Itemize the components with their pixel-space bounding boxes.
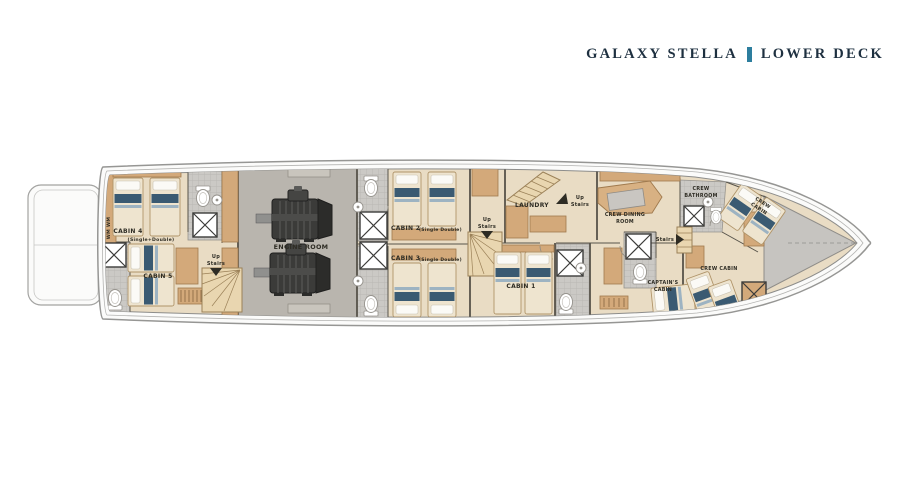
aft-staircase xyxy=(202,268,242,312)
page: GALAXY STELLA LOWER DECK xyxy=(0,0,900,485)
captains-cabin-label-1: CAPTAIN'S xyxy=(648,280,679,286)
aft-upstairs-stairs: Stairs xyxy=(207,261,225,267)
cabin2-type-label: (Single Double) xyxy=(419,227,462,233)
engine-room-label: ENGINE ROOM xyxy=(274,243,329,251)
bed xyxy=(428,172,456,226)
bed xyxy=(428,263,456,317)
toilet-icon xyxy=(108,290,122,311)
toilet-icon xyxy=(710,207,721,223)
crew-cabin-aft-label: CREW CABIN xyxy=(700,266,737,272)
sink-icon xyxy=(353,276,363,286)
captains-cabin-label-2: CABIN xyxy=(654,287,672,293)
mid-upstairs-stairs: Stairs xyxy=(478,224,496,230)
cabin5-label: CABIN 5 xyxy=(143,273,172,280)
shower-tray-icon xyxy=(360,212,387,239)
swim-platform xyxy=(28,185,102,305)
cabin2-label: CABIN 2 xyxy=(391,225,420,232)
toilet-icon xyxy=(196,186,210,207)
shower-tray-icon xyxy=(360,242,387,269)
cabin4-type-label: (Single+Double) xyxy=(128,237,175,243)
cabin1-label: CABIN 1 xyxy=(506,283,535,290)
sink-icon xyxy=(576,263,586,273)
crew-dining-label-1: CREW DINING xyxy=(605,212,645,218)
title-separator xyxy=(747,47,752,62)
toilet-icon xyxy=(364,176,378,197)
crew-bathroom-label-2: BATHROOM xyxy=(684,193,717,199)
shower-tray-icon xyxy=(684,206,704,226)
toilet-icon xyxy=(364,296,378,317)
deck-name: LOWER DECK xyxy=(761,46,884,63)
bed xyxy=(128,276,174,306)
mid-upstairs-up: Up xyxy=(483,217,491,223)
cabin3-type-label: (Single Double) xyxy=(419,257,462,263)
shower-tray-icon xyxy=(193,213,217,237)
crew-stairs-text: Stairs xyxy=(656,237,674,243)
bed xyxy=(128,244,174,272)
cabin4-label: CABIN 4 xyxy=(113,228,142,235)
shower-tray-icon xyxy=(626,234,651,259)
laundry-label: LAUNDRY xyxy=(515,202,549,209)
aft-upstairs-up: Up xyxy=(212,254,220,260)
sink-icon xyxy=(212,195,222,205)
wardrobe-wm-label: WM WM xyxy=(106,217,112,240)
cabin3-label: CABIN 3 xyxy=(391,255,420,262)
laundry-upstairs-stairs: Stairs xyxy=(571,202,589,208)
toilet-icon xyxy=(633,264,647,285)
toilet-icon xyxy=(559,294,573,315)
deck-plan-svg: CABIN 4 (Single+Double) CABIN 5 ENGINE R… xyxy=(0,0,900,485)
laundry-upstairs-up: Up xyxy=(576,195,584,201)
crew-dining-label-2: ROOM xyxy=(616,219,634,225)
crew-bathroom-label-1: CREW xyxy=(693,186,710,192)
bed xyxy=(393,172,421,226)
bed xyxy=(393,263,421,317)
sink-icon xyxy=(353,202,363,212)
boat-name: GALAXY STELLA xyxy=(586,46,738,63)
engine-vent-bottom xyxy=(288,304,330,313)
bed xyxy=(150,178,180,236)
plan-title: GALAXY STELLA LOWER DECK xyxy=(586,46,884,63)
